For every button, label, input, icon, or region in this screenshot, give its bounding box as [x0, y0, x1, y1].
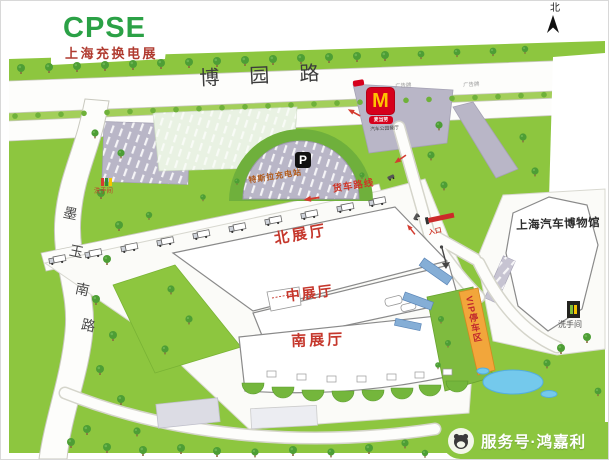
mcdonalds-badge: 麦当劳 — [369, 116, 393, 124]
compass-north-label: 北 — [550, 4, 560, 14]
mcdonalds-icon: M — [367, 88, 394, 114]
left-road-char-1: 墨 — [62, 205, 79, 222]
restroom-icon — [567, 301, 580, 318]
south-pad-2 — [251, 405, 318, 428]
billboard-label-b: 广告牌 — [463, 82, 479, 88]
watermark-avatar-icon — [448, 428, 474, 454]
watermark-account: 服务号·鸿嘉利 — [481, 430, 586, 452]
mcdonalds-name: 麦当劳 — [374, 118, 388, 123]
restroom-left-label: 洗手间 — [94, 188, 113, 194]
south-hall-label: 南展厅 — [291, 332, 346, 349]
watermark: 服务号·鸿嘉利 — [442, 422, 609, 459]
parking-icon: P — [295, 152, 311, 168]
left-road-char-2: 玉 — [68, 243, 85, 260]
venue-map: CPSE 上海充换电展 博园路 墨 玉 南 路 北展厅 中展厅 南展厅 上海汽车… — [0, 0, 609, 460]
compass-north-icon — [545, 15, 561, 40]
mcdonalds-m: M — [372, 91, 389, 111]
billboard-label-a: 广告牌 — [395, 83, 411, 89]
restroom-icon — [101, 178, 112, 186]
left-road-char-3: 南 — [74, 281, 91, 298]
right-margin — [549, 53, 605, 199]
event-logo-subtitle: 上海充换电展 — [65, 47, 158, 60]
restroom-right-label: 洗手间 — [558, 321, 582, 329]
left-road-char-4: 路 — [80, 317, 97, 334]
event-logo: CPSE — [63, 14, 146, 43]
museum-plot — [477, 189, 605, 355]
